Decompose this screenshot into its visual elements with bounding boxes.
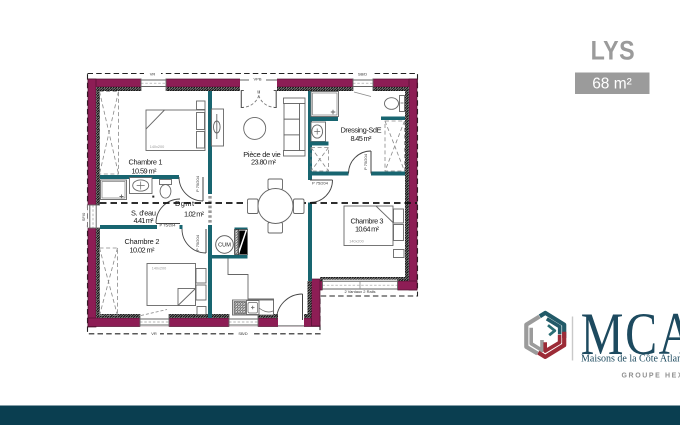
- svg-text:GROUPE HEXAOM: GROUPE HEXAOM: [622, 373, 680, 380]
- svg-text:2 Vantaux 2 Rails: 2 Vantaux 2 Rails: [344, 289, 375, 294]
- svg-text:1.02 m²: 1.02 m²: [184, 210, 205, 219]
- svg-text:P 75/204: P 75/204: [160, 223, 177, 228]
- svg-text:4.41 m²: 4.41 m²: [134, 216, 155, 225]
- svg-text:140x200: 140x200: [152, 267, 167, 271]
- svg-text:Dgmt: Dgmt: [175, 199, 194, 208]
- svg-text:VR: VR: [150, 72, 156, 77]
- svg-text:Maisons de la Côte Atlantique: Maisons de la Côte Atlantique: [581, 354, 680, 365]
- svg-text:23.80 m²: 23.80 m²: [251, 158, 277, 167]
- svg-text:140x200: 140x200: [349, 240, 364, 244]
- svg-text:P 75/204: P 75/204: [195, 175, 200, 192]
- svg-text:140x200: 140x200: [150, 145, 165, 149]
- svg-text:P 75/204: P 75/204: [312, 181, 329, 186]
- svg-text:68 m²: 68 m²: [592, 76, 632, 93]
- svg-text:8.45 m²: 8.45 m²: [351, 134, 373, 143]
- svg-text:10.02 m²: 10.02 m²: [130, 246, 156, 255]
- svg-text:SB/D: SB/D: [238, 331, 247, 336]
- svg-text:P 75/204: P 75/204: [363, 153, 368, 170]
- svg-text:VPB: VPB: [253, 76, 261, 81]
- svg-text:SB/D: SB/D: [358, 72, 367, 77]
- svg-text:10.64 m²: 10.64 m²: [355, 225, 380, 234]
- svg-text:LYS: LYS: [591, 36, 635, 66]
- svg-text:10.59 m²: 10.59 m²: [132, 167, 158, 176]
- svg-text:SF/0: SF/0: [81, 212, 86, 221]
- svg-text:P 75/204: P 75/204: [195, 234, 200, 251]
- svg-text:CUM: CUM: [218, 243, 231, 249]
- svg-text:VR: VR: [151, 331, 157, 336]
- svg-text:Chambre 1: Chambre 1: [129, 158, 163, 167]
